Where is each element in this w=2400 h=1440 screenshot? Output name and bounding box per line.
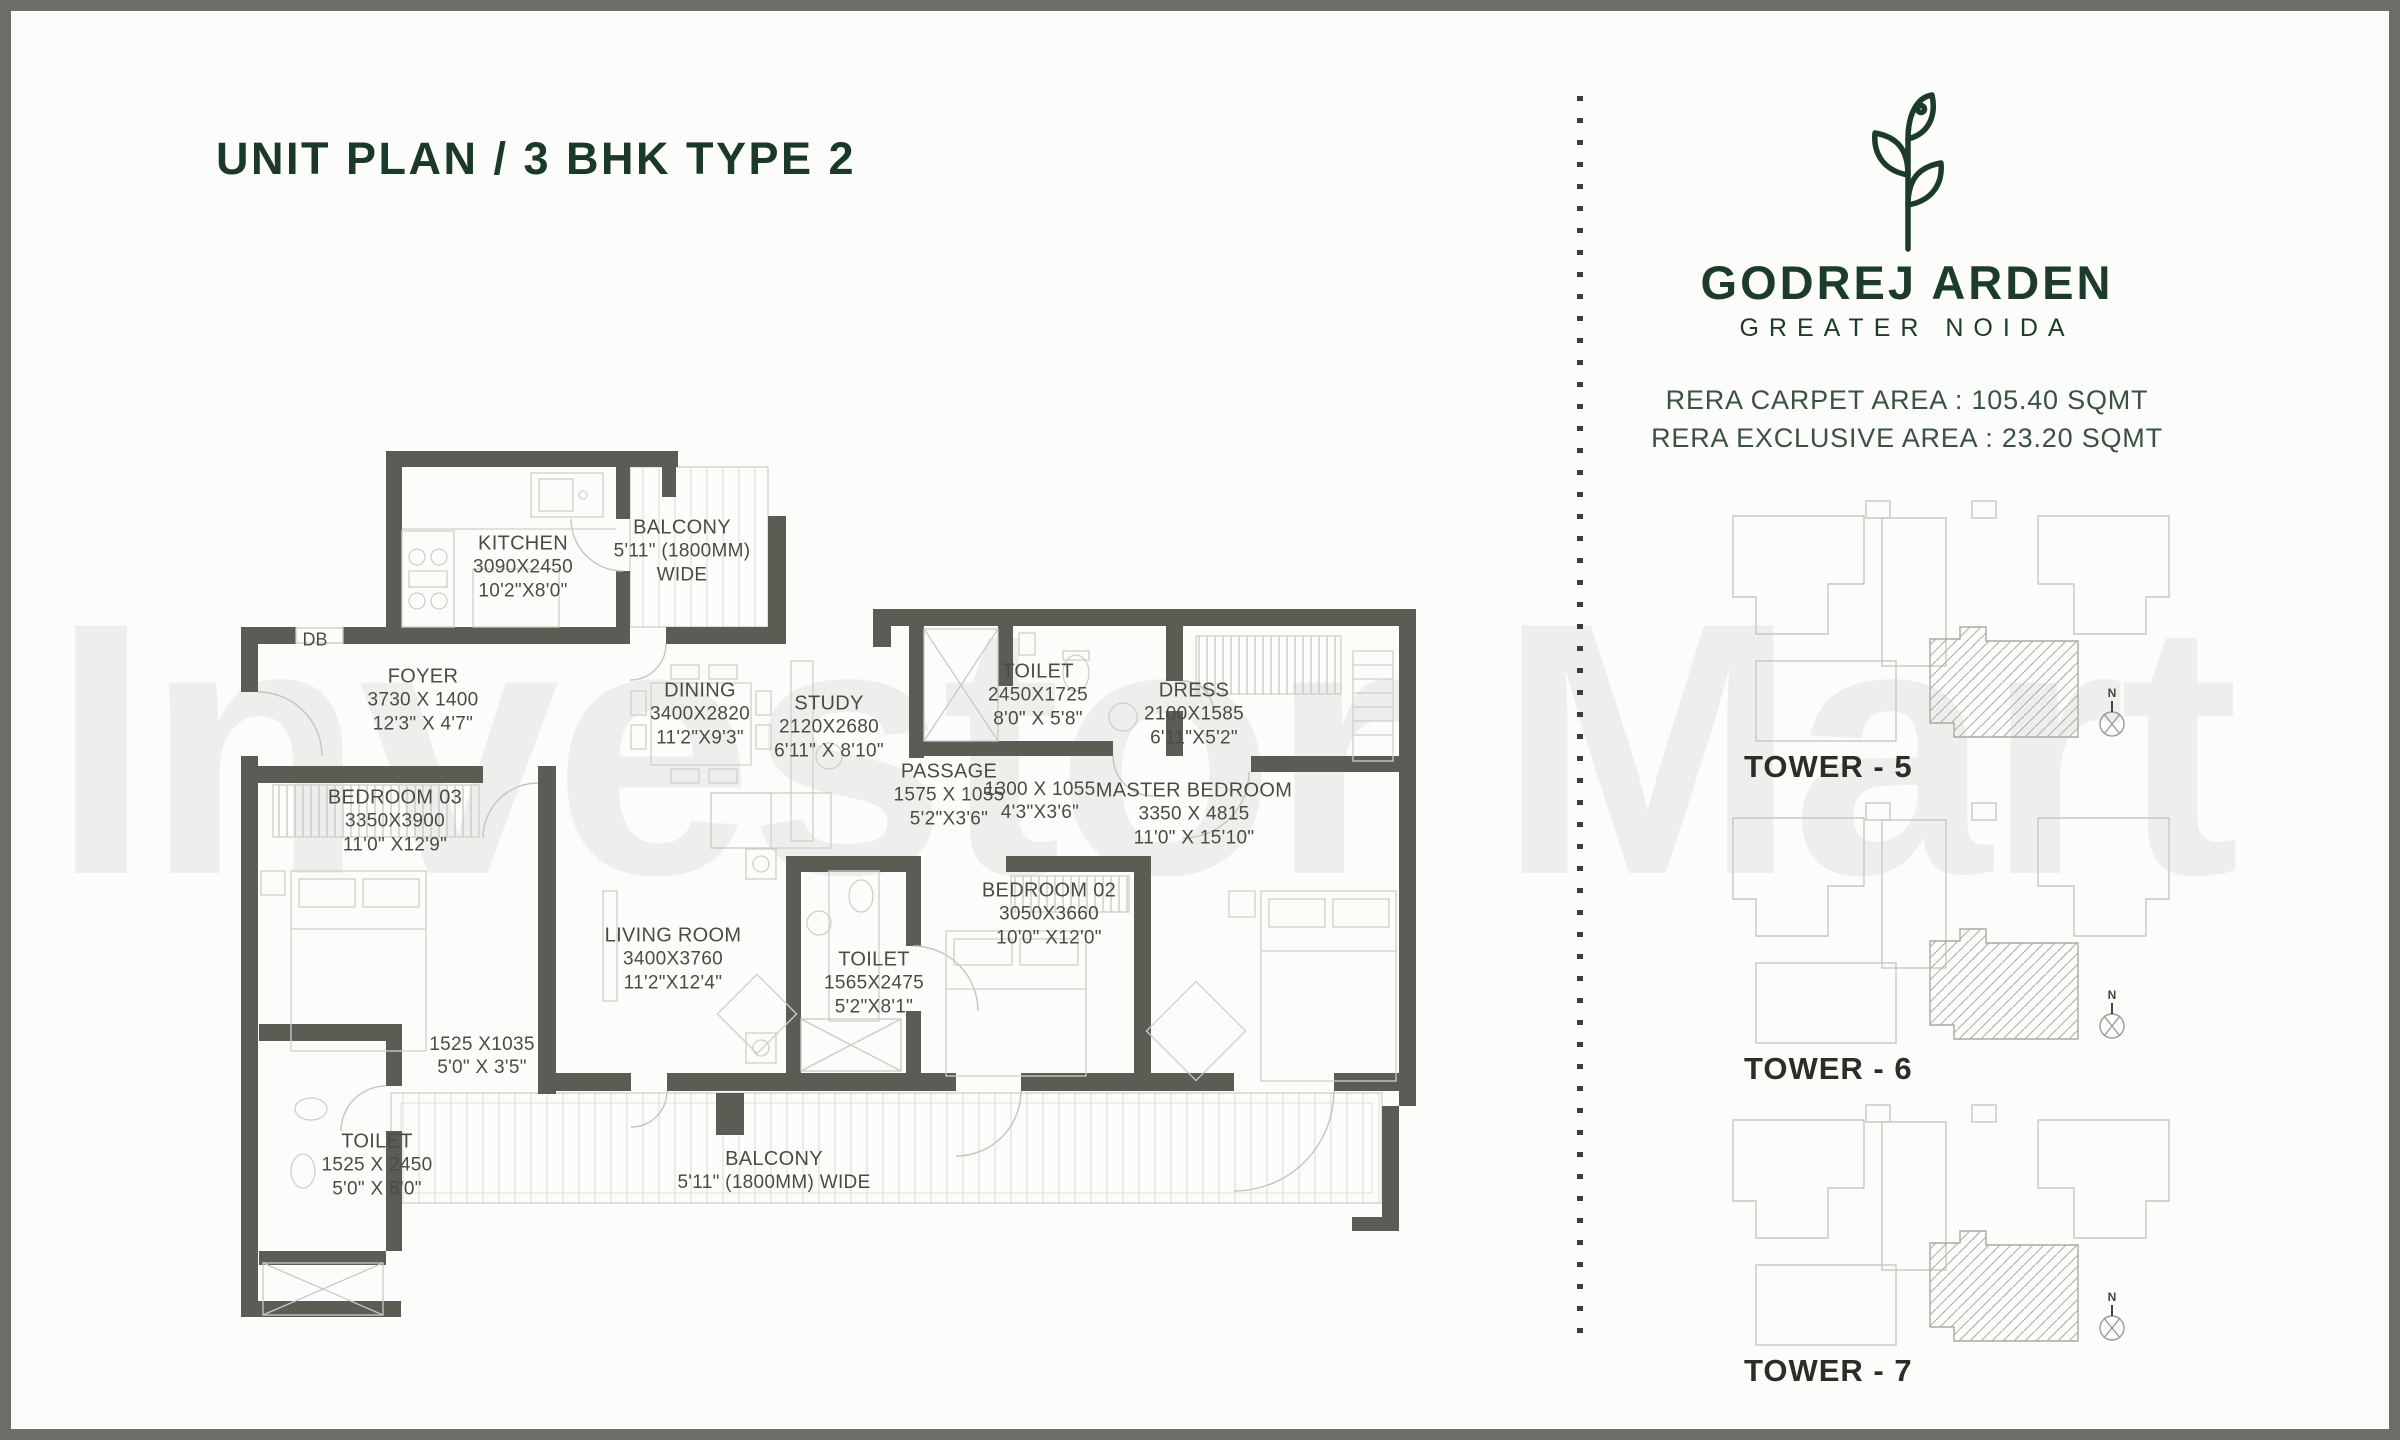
- room-label-kitchen: KITCHEN3090X245010'2"X8'0": [473, 532, 573, 603]
- plan-sheet: Investor Mart UNIT PLAN / 3 BHK TYPE 2: [0, 0, 2400, 1440]
- room-label-bedroom-03: BEDROOM 033350X390011'0" X12'9": [328, 786, 462, 857]
- compass-north-icon: N: [2108, 1290, 2117, 1304]
- compass-north-icon: N: [2108, 988, 2117, 1002]
- room-label-toilet-lobby: 1525 X10355'0" X 3'5": [429, 1033, 535, 1079]
- room-label-toilet-2: TOILET1565X24755'2"X8'1": [824, 948, 924, 1019]
- godrej-arden-leaf-logo-icon: [1845, 87, 1969, 255]
- room-label-foyer: FOYER3730 X 140012'3" X 4'7": [367, 665, 478, 736]
- room-label-study: STUDY2120X26806'11" X 8'10": [774, 692, 884, 763]
- compass-north-icon: N: [2108, 686, 2117, 700]
- tower-7-label: TOWER - 7: [1744, 1353, 1913, 1389]
- rera-exclusive-area: RERA EXCLUSIVE AREA : 23.20 SQMT: [1622, 423, 2192, 454]
- tower-6-label: TOWER - 6: [1744, 1051, 1913, 1087]
- brand-location: GREATER NOIDA: [1622, 314, 2192, 343]
- room-label-master-bedroom: MASTER BEDROOM3350 X 481511'0" X 15'10": [1096, 779, 1292, 850]
- db-label: DB: [302, 630, 327, 651]
- tower-5-keyplan: N: [1716, 496, 2186, 776]
- room-label-balcony-top: BALCONY5'11" (1800MM)WIDE: [614, 516, 751, 587]
- tower-7-keyplan: N: [1716, 1100, 2186, 1380]
- room-label-lobby: 1300 X 10554'3"X3'6": [984, 778, 1095, 824]
- tower-5-label: TOWER - 5: [1744, 749, 1913, 785]
- room-label-toilet-1: TOILET2450X17258'0" X 5'8": [988, 660, 1088, 731]
- page-title: UNIT PLAN / 3 BHK TYPE 2: [216, 133, 856, 185]
- rera-carpet-area: RERA CARPET AREA : 105.40 SQMT: [1622, 385, 2192, 416]
- room-label-living-room: LIVING ROOM3400X376011'2"X12'4": [605, 924, 742, 995]
- room-label-balcony-bottom: BALCONY5'11" (1800MM) WIDE: [677, 1147, 870, 1195]
- room-label-dining: DINING3400X282011'2"X9'3": [650, 679, 750, 750]
- room-label-bedroom-02: BEDROOM 023050X366010'0" X12'0": [982, 879, 1116, 950]
- tower-6-keyplan: N: [1716, 798, 2186, 1078]
- brand-name: GODREJ ARDEN: [1622, 255, 2192, 310]
- section-divider: [1577, 96, 1583, 1342]
- room-label-dress: DRESS2100X15856'11"X5'2": [1144, 679, 1244, 750]
- room-label-toilet-3: TOILET1525 X 24505'0" X 8'0": [321, 1130, 432, 1201]
